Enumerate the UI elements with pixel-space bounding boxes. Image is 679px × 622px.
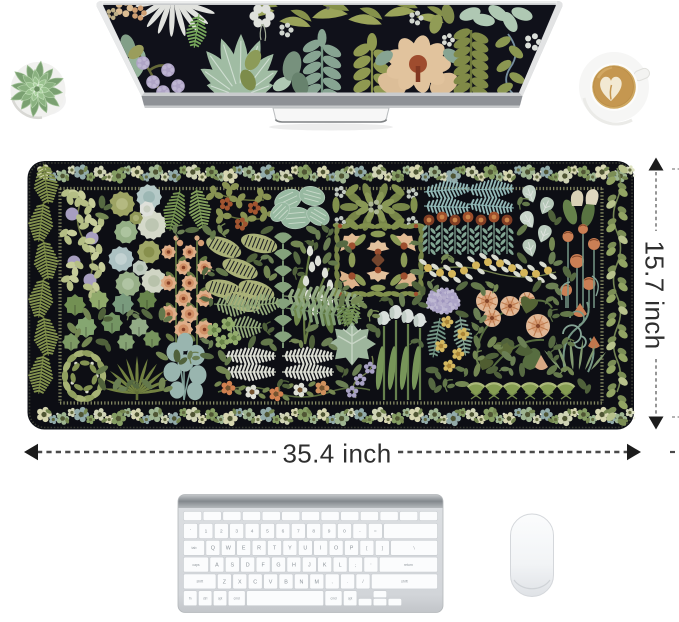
svg-text:M: M — [315, 579, 320, 585]
svg-text:]: ] — [382, 546, 383, 551]
svg-text:;: ; — [355, 562, 356, 567]
svg-text:35.4 inch: 35.4 inch — [282, 439, 391, 469]
svg-text:shift: shift — [197, 580, 204, 584]
svg-text:J: J — [308, 563, 311, 569]
svg-text:G: G — [276, 563, 280, 569]
svg-text:ctrl: ctrl — [203, 596, 208, 600]
svg-text:X: X — [238, 579, 242, 585]
svg-text:fn: fn — [189, 596, 192, 600]
svg-text:V: V — [269, 579, 273, 585]
svg-text:tab: tab — [192, 546, 197, 550]
svg-text:15.7 inch: 15.7 inch — [640, 240, 670, 349]
svg-text:C: C — [253, 579, 257, 585]
svg-text:return: return — [404, 563, 413, 567]
svg-text:A: A — [215, 563, 219, 569]
svg-text:U: U — [303, 546, 307, 552]
svg-text:caps: caps — [192, 563, 199, 567]
svg-text:8: 8 — [312, 529, 315, 535]
svg-text:0: 0 — [343, 529, 346, 535]
svg-text:K: K — [323, 563, 327, 569]
svg-text:cmd: cmd — [330, 596, 336, 600]
svg-text:cmd: cmd — [234, 596, 240, 600]
svg-text:Y: Y — [288, 546, 292, 552]
svg-text:1: 1 — [205, 529, 208, 535]
svg-text:2: 2 — [220, 529, 223, 535]
svg-text:I: I — [320, 546, 322, 552]
svg-text:,: , — [332, 579, 333, 584]
svg-text:P: P — [350, 546, 354, 552]
svg-text:opt: opt — [348, 596, 353, 600]
svg-text:R: R — [257, 546, 261, 552]
svg-text:9: 9 — [328, 529, 331, 535]
svg-text:H: H — [292, 563, 296, 569]
svg-text:E: E — [242, 546, 246, 552]
svg-text:B: B — [284, 579, 288, 585]
svg-text:': ' — [370, 562, 371, 567]
svg-text:6: 6 — [282, 529, 285, 535]
svg-text:7: 7 — [297, 529, 300, 535]
svg-text:5: 5 — [266, 529, 269, 535]
svg-text:L: L — [339, 563, 342, 569]
svg-text:D: D — [246, 563, 250, 569]
svg-text:3: 3 — [235, 529, 238, 535]
svg-text:opt: opt — [218, 596, 223, 600]
svg-text:Q: Q — [211, 546, 215, 552]
svg-text:4: 4 — [251, 529, 254, 535]
svg-text:N: N — [299, 579, 303, 585]
svg-text:O: O — [334, 546, 338, 552]
svg-text:shift: shift — [401, 580, 408, 584]
svg-text:=: = — [374, 530, 377, 535]
svg-text:.: . — [347, 579, 348, 584]
svg-text:S: S — [230, 563, 234, 569]
svg-text:W: W — [226, 546, 232, 552]
